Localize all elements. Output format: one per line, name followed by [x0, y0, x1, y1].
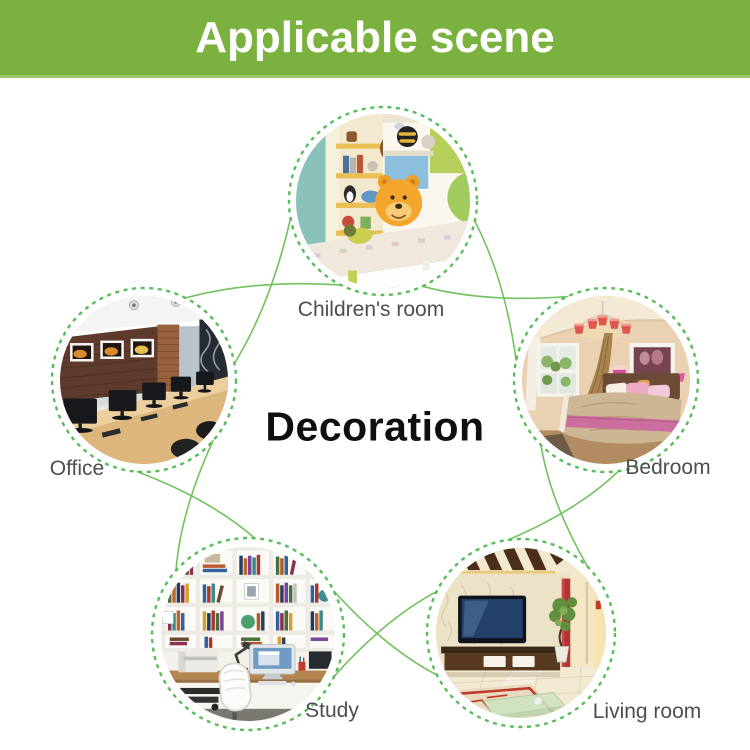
living-room-photo [436, 548, 606, 718]
children-room-photo [296, 114, 470, 288]
applicable-scene-graphic: Applicable scene [0, 0, 750, 750]
office-illustration [60, 296, 228, 464]
study-photo [161, 547, 335, 721]
study-label: Study [305, 699, 359, 723]
children-room-label: Children's room [298, 298, 444, 322]
bedroom-photo [522, 296, 690, 464]
center-title: Decoration [265, 404, 484, 451]
bedroom-illustration [522, 296, 690, 464]
children-room-illustration [296, 114, 470, 288]
living-room-label: Living room [593, 700, 702, 724]
living-room-illustration [436, 548, 606, 718]
office-photo [60, 296, 228, 464]
office-label: Office [50, 457, 104, 481]
bedroom-label: Bedroom [625, 456, 710, 480]
study-illustration [161, 547, 335, 721]
